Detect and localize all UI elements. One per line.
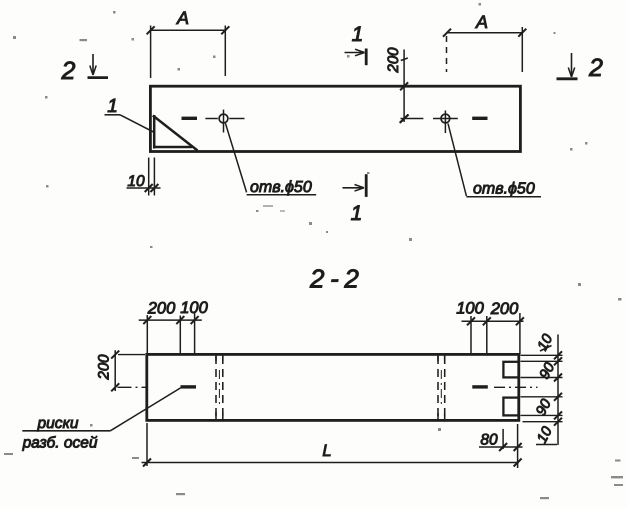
svg-text:10: 10	[535, 332, 557, 354]
svg-text:2: 2	[61, 57, 76, 85]
svg-text:отв.ϕ50: отв.ϕ50	[473, 181, 535, 198]
svg-text:A: A	[176, 8, 189, 28]
svg-text:200: 200	[96, 354, 113, 381]
svg-text:2 - 2: 2 - 2	[309, 264, 359, 294]
svg-text:200: 200	[147, 300, 176, 318]
svg-text:риски: риски	[37, 415, 79, 432]
svg-text:200: 200	[490, 300, 519, 318]
svg-text:80: 80	[480, 432, 498, 449]
svg-text:1: 1	[352, 23, 364, 46]
svg-text:10: 10	[534, 424, 556, 446]
svg-text:L: L	[322, 442, 331, 460]
svg-text:1: 1	[351, 202, 363, 225]
svg-text:A: A	[475, 12, 488, 32]
svg-text:отв.ϕ50: отв.ϕ50	[250, 179, 312, 196]
svg-text:1: 1	[107, 96, 118, 117]
svg-text:разб. осей: разб. осей	[22, 435, 98, 452]
svg-text:100: 100	[180, 299, 208, 317]
svg-text:200: 200	[385, 47, 402, 74]
svg-text:2: 2	[588, 54, 603, 82]
svg-text:100: 100	[456, 300, 484, 318]
